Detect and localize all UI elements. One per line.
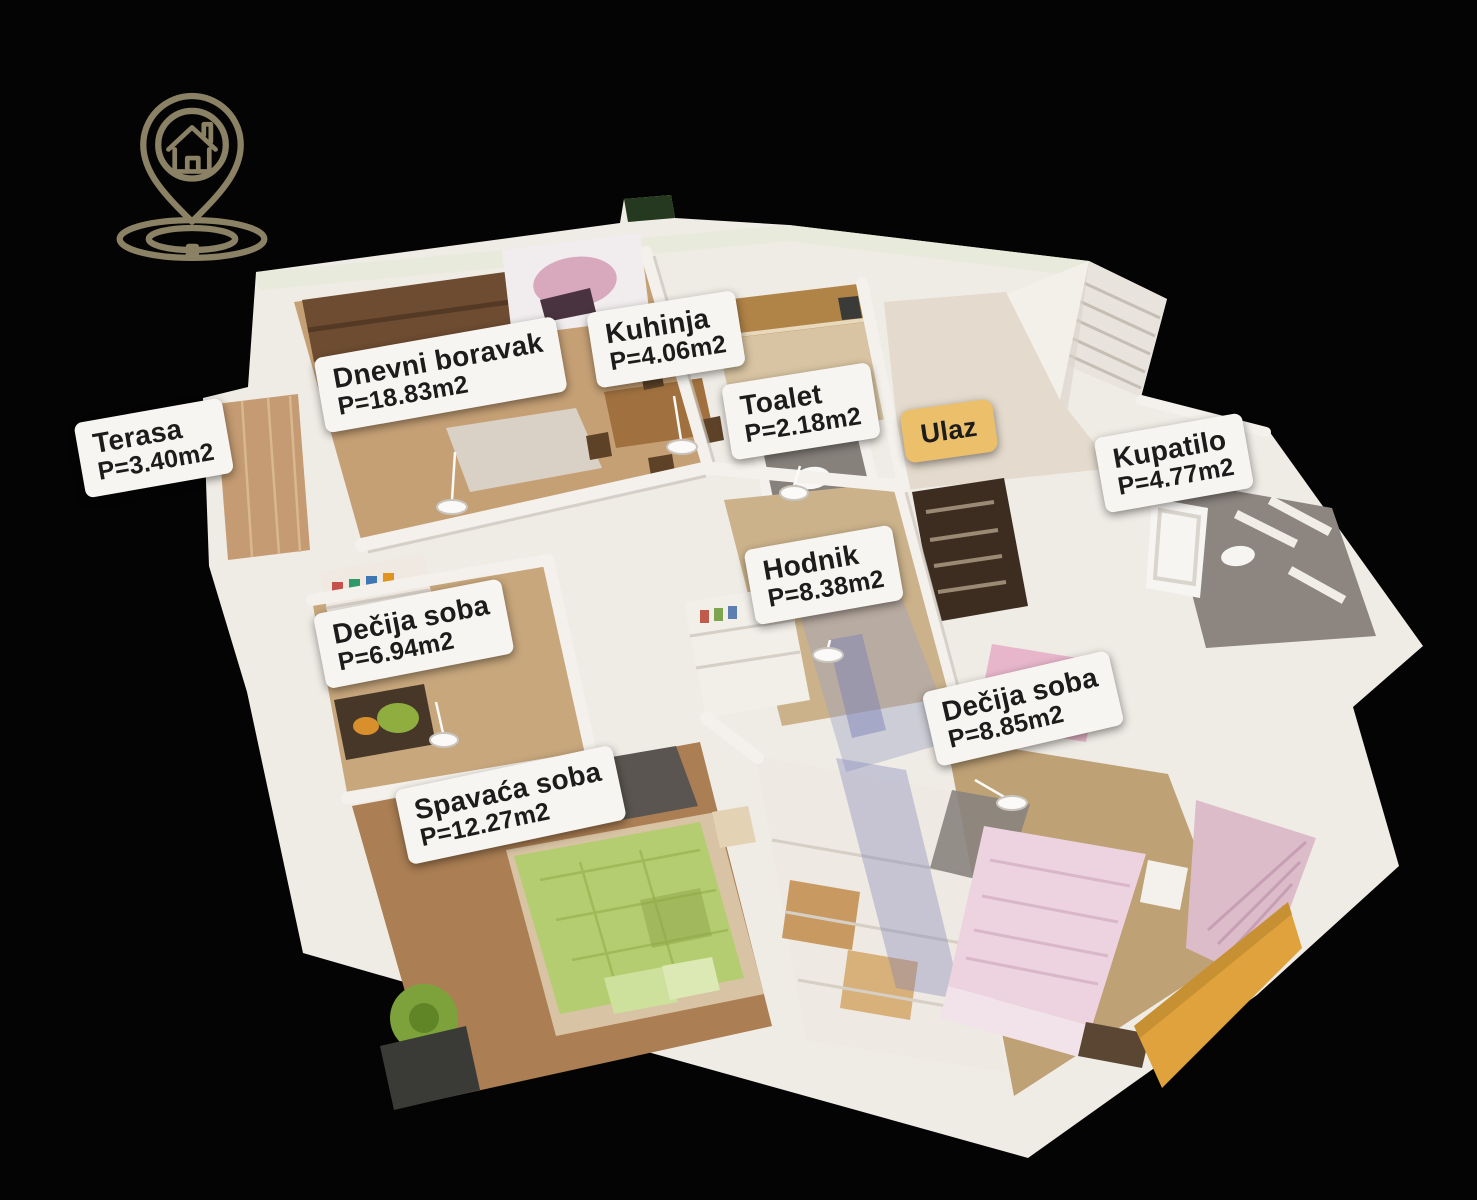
kids1-toy bbox=[353, 717, 379, 735]
floor-marker bbox=[430, 733, 458, 747]
house-location-pin-icon bbox=[62, 52, 322, 272]
floor-marker bbox=[437, 500, 467, 514]
floor-marker bbox=[667, 440, 697, 454]
floor-marker bbox=[997, 796, 1027, 810]
closet-box bbox=[782, 880, 860, 950]
kids2-nightstand bbox=[1140, 860, 1188, 910]
floor-marker bbox=[813, 648, 843, 662]
floorplan-render: Terasa P=3.40m2 Dnevni boravak P=18.83m2… bbox=[0, 0, 1477, 1200]
kitchen-appliance bbox=[838, 296, 862, 320]
rooftop-box bbox=[624, 195, 675, 222]
bedroom-desk bbox=[380, 1026, 480, 1110]
kids1-chair bbox=[377, 703, 419, 733]
bathtub bbox=[1146, 498, 1208, 598]
room-name: Ulaz bbox=[919, 413, 979, 449]
room-terasa bbox=[216, 394, 310, 560]
floor-marker bbox=[780, 486, 808, 500]
